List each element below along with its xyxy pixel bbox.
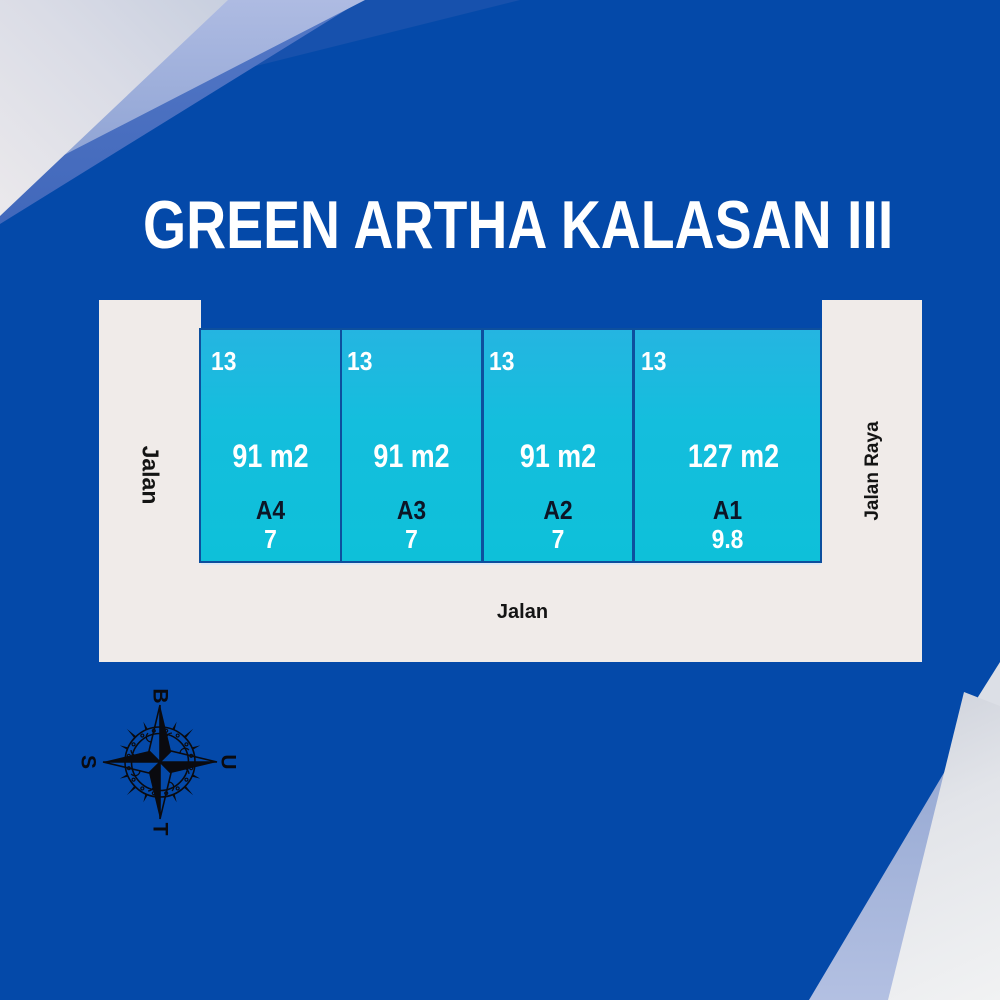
svg-text:B: B [149,688,172,703]
svg-text:U: U [217,754,240,769]
svg-text:S: S [80,755,100,769]
svg-text:T: T [149,823,172,836]
